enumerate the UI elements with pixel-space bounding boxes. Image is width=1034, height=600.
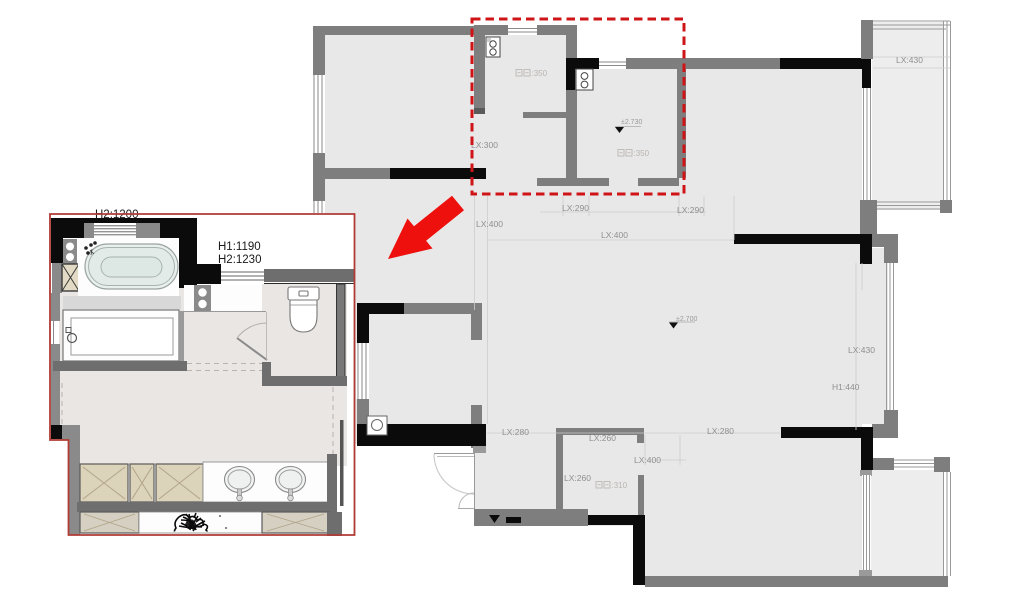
svg-text:LX:300: LX:300 [471, 140, 498, 150]
svg-text:LX:430: LX:430 [896, 55, 923, 65]
svg-text:±2.730: ±2.730 [621, 119, 642, 126]
svg-text:LX:290: LX:290 [677, 205, 704, 215]
svg-text:LX:400: LX:400 [476, 219, 503, 229]
svg-text:LX:290: LX:290 [562, 203, 589, 213]
svg-text:LX:280: LX:280 [707, 426, 734, 436]
svg-text:LX:260: LX:260 [589, 433, 616, 443]
svg-text::350: :350 [634, 149, 650, 158]
svg-text:LX:260: LX:260 [564, 473, 591, 483]
svg-text:LX:400: LX:400 [601, 230, 628, 240]
svg-text::310: :310 [612, 481, 628, 490]
svg-text:LX:280: LX:280 [502, 427, 529, 437]
svg-text:H1:440: H1:440 [832, 382, 860, 392]
svg-text:H2:1230: H2:1230 [218, 254, 261, 266]
svg-text:LX:400: LX:400 [634, 455, 661, 465]
svg-text:H1:1190: H1:1190 [218, 241, 261, 253]
svg-text:LX:430: LX:430 [848, 345, 875, 355]
svg-text::350: :350 [532, 69, 548, 78]
